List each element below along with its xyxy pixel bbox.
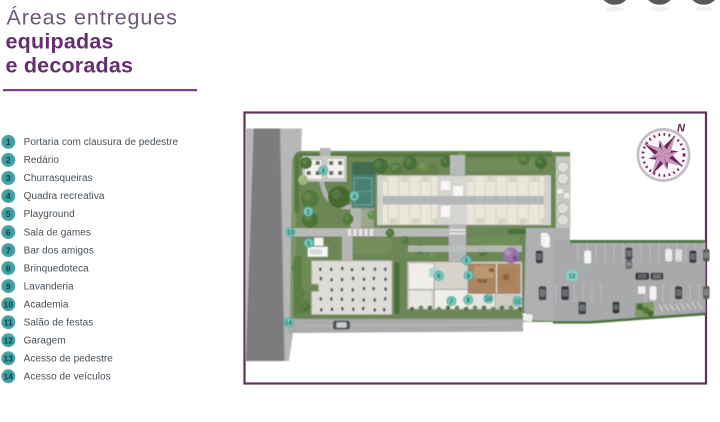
svg-text:N: N [677, 123, 686, 135]
svg-text:6: 6 [6, 227, 11, 237]
svg-text:7: 7 [6, 245, 11, 255]
svg-text:e decoradas: e decoradas [6, 54, 134, 78]
svg-text:13: 13 [4, 354, 14, 364]
svg-text:14: 14 [4, 372, 14, 382]
svg-text:2: 2 [6, 155, 11, 165]
svg-text:Churrasqueiras: Churrasqueiras [24, 173, 93, 184]
svg-text:Acesso de veículos: Acesso de veículos [24, 372, 111, 383]
svg-text:Áreas entregues: Áreas entregues [7, 5, 178, 30]
svg-text:Lavanderia: Lavanderia [24, 281, 74, 292]
svg-text:10: 10 [4, 299, 14, 309]
svg-text:4: 4 [6, 191, 11, 201]
svg-text:Salão de festas: Salão de festas [24, 317, 94, 328]
svg-text:equipadas: equipadas [6, 30, 114, 54]
svg-text:Garagem: Garagem [24, 335, 66, 346]
svg-text:Quadra recreativa: Quadra recreativa [24, 191, 105, 202]
svg-text:11: 11 [4, 317, 13, 327]
svg-text:1: 1 [6, 137, 11, 147]
svg-text:14: 14 [285, 321, 292, 327]
svg-text:9: 9 [6, 281, 11, 291]
svg-text:3: 3 [6, 173, 11, 183]
svg-text:11: 11 [514, 299, 521, 305]
svg-text:13: 13 [287, 231, 294, 237]
svg-text:Redário: Redário [24, 155, 60, 166]
svg-text:Bar dos amigos: Bar dos amigos [24, 245, 94, 256]
svg-text:12: 12 [4, 335, 14, 345]
svg-text:12: 12 [569, 274, 576, 280]
svg-text:Acesso de pedestre: Acesso de pedestre [24, 354, 114, 365]
svg-text:5: 5 [6, 209, 11, 219]
svg-text:Portaria com clausura de pedes: Portaria com clausura de pedestre [24, 137, 179, 148]
svg-text:Playground: Playground [24, 209, 75, 220]
svg-text:10: 10 [485, 297, 492, 303]
svg-text:Brinquedoteca: Brinquedoteca [24, 263, 90, 274]
svg-text:Academia: Academia [24, 299, 69, 310]
svg-text:Sala de games: Sala de games [24, 227, 91, 238]
svg-text:8: 8 [6, 263, 11, 273]
